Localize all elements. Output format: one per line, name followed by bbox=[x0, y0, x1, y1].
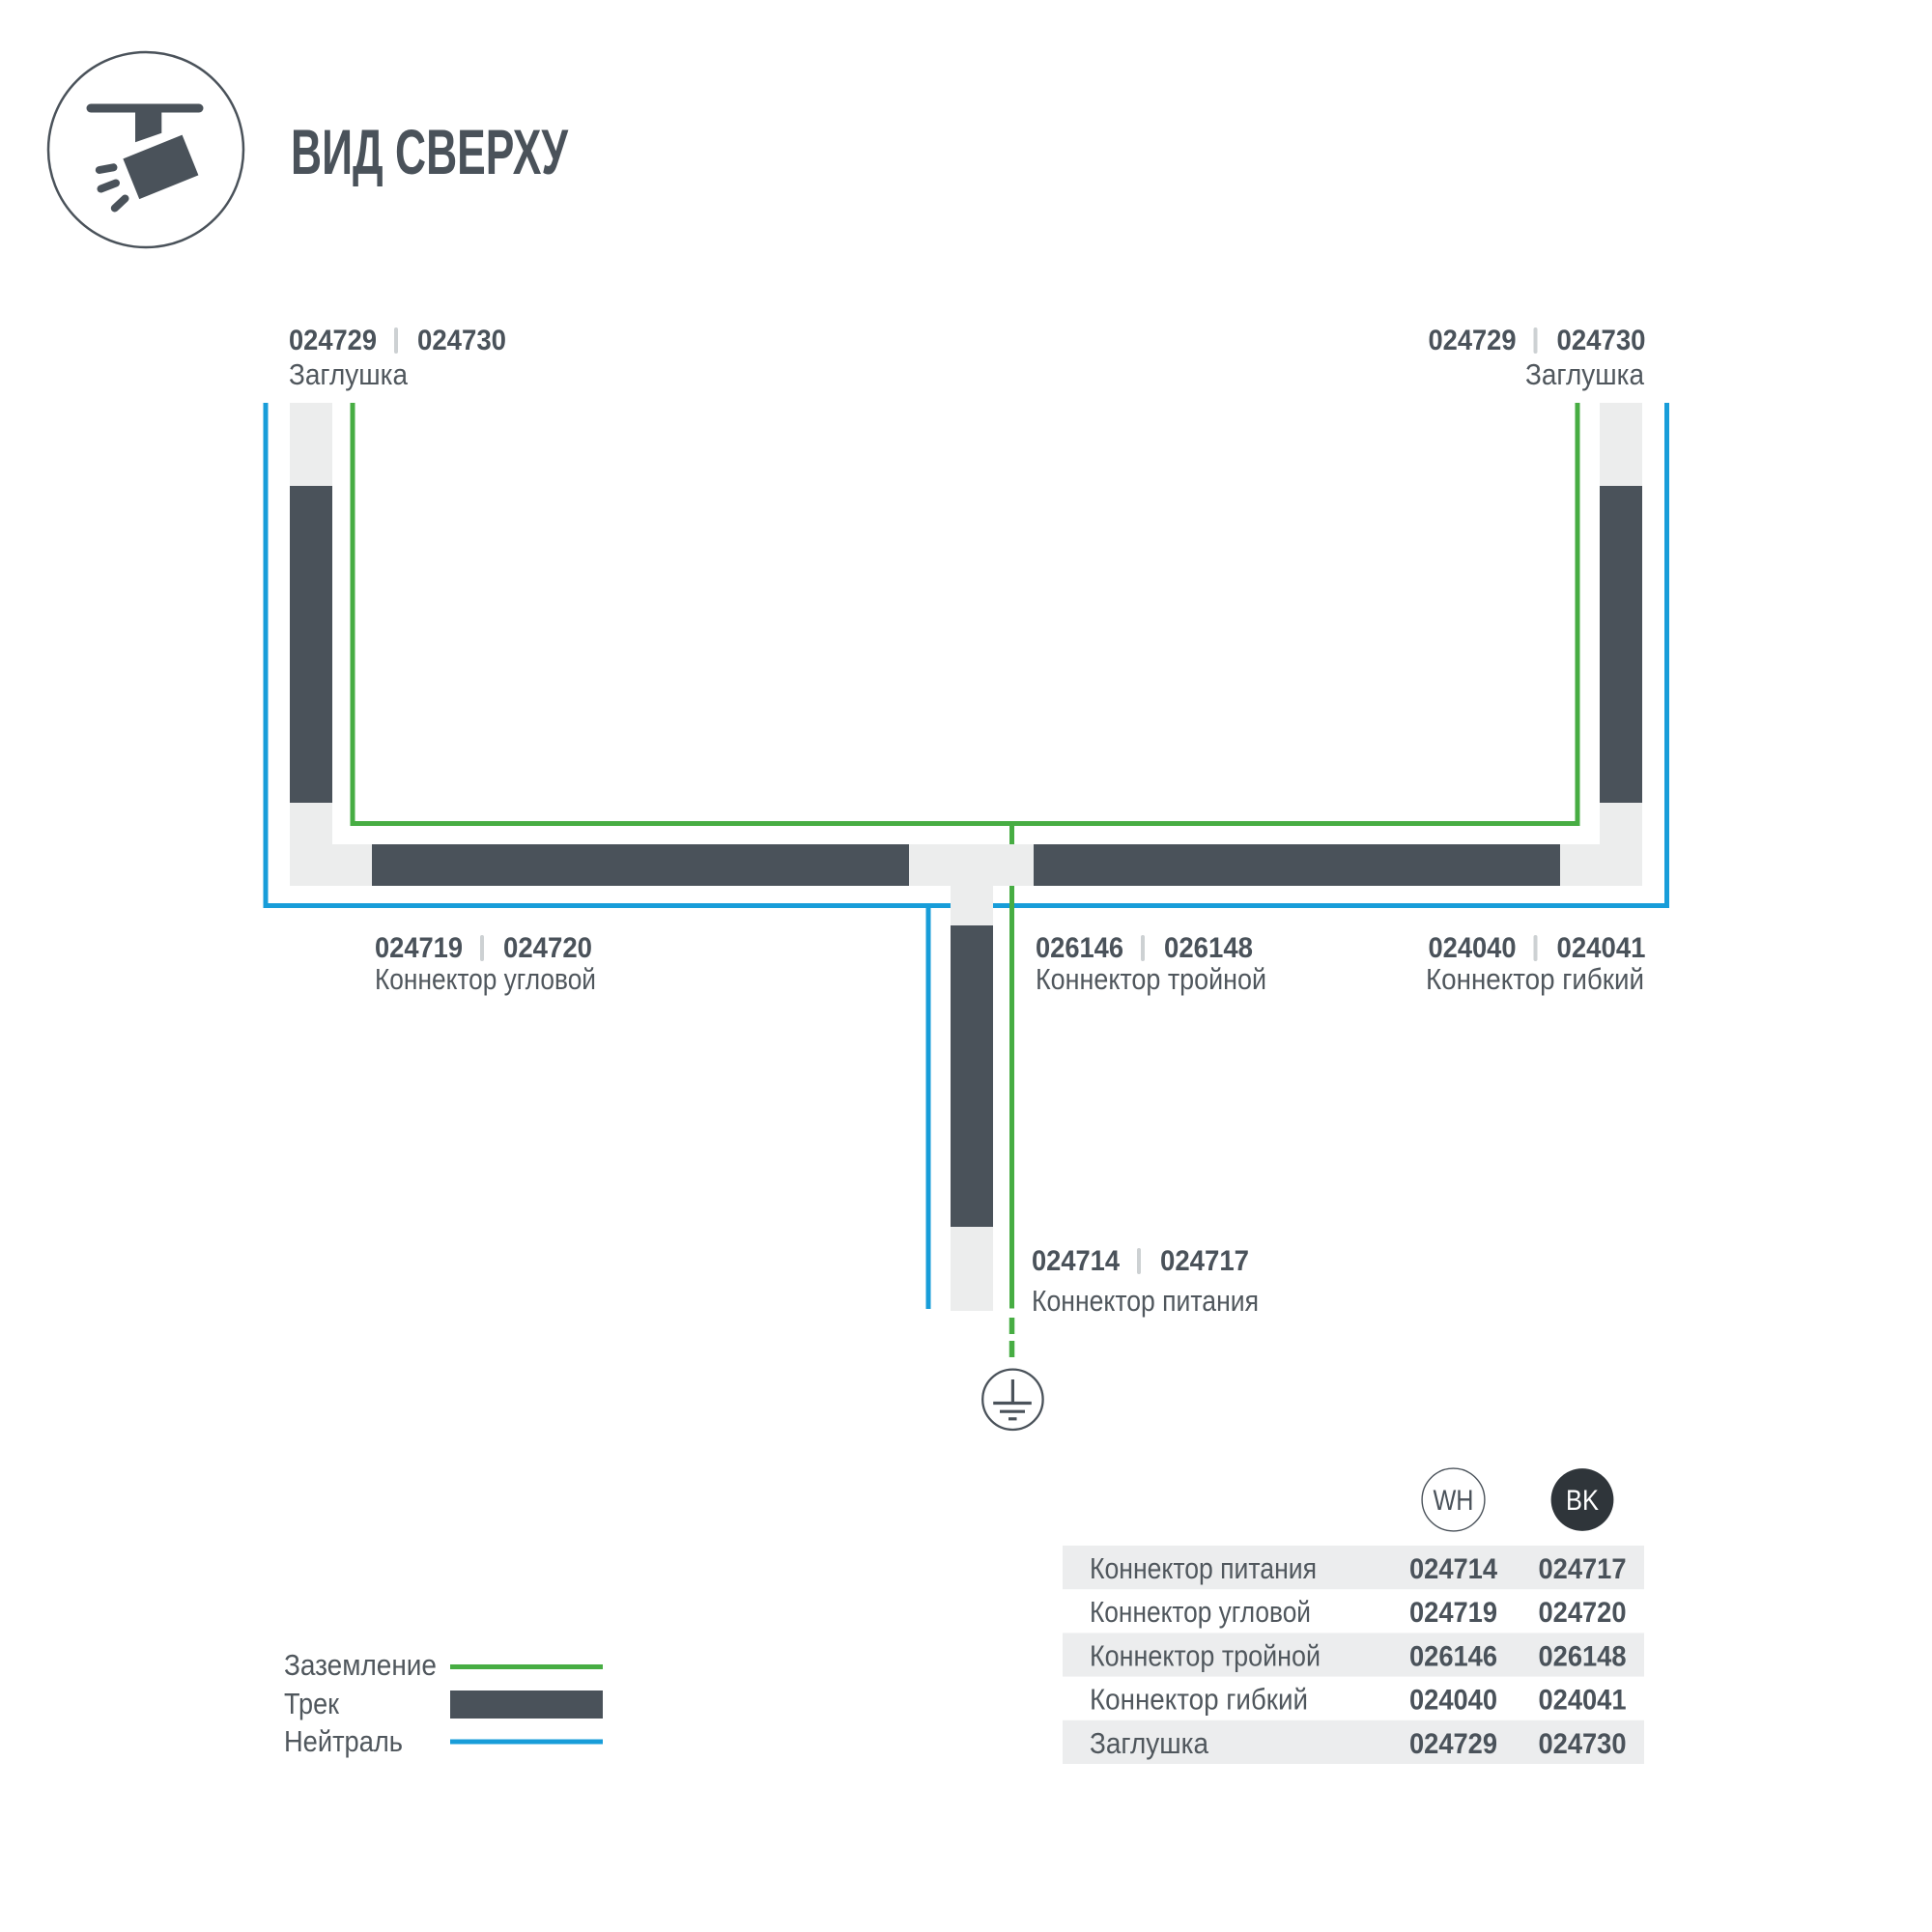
svg-text:024730: 024730 bbox=[1557, 325, 1646, 356]
svg-text:024041: 024041 bbox=[1557, 932, 1646, 964]
svg-text:ВИД СВЕРХУ: ВИД СВЕРХУ bbox=[291, 116, 569, 187]
svg-text:026148: 026148 bbox=[1539, 1640, 1627, 1672]
svg-text:Коннектор тройной: Коннектор тройной bbox=[1036, 962, 1266, 996]
svg-text:024719: 024719 bbox=[1409, 1597, 1497, 1629]
svg-text:Коннектор угловой: Коннектор угловой bbox=[1090, 1595, 1311, 1629]
svg-text:Заглушка: Заглушка bbox=[1090, 1726, 1209, 1760]
svg-text:024041: 024041 bbox=[1539, 1685, 1627, 1717]
svg-text:024730: 024730 bbox=[1539, 1728, 1627, 1760]
svg-text:024714: 024714 bbox=[1409, 1553, 1497, 1585]
svg-text:024729: 024729 bbox=[1409, 1728, 1497, 1760]
svg-text:Коннектор питания: Коннектор питания bbox=[1032, 1284, 1259, 1318]
svg-text:Заземление: Заземление bbox=[284, 1648, 437, 1682]
svg-text:024730: 024730 bbox=[417, 325, 506, 356]
svg-text:024729: 024729 bbox=[1429, 325, 1517, 356]
svg-text:WH: WH bbox=[1434, 1485, 1474, 1517]
svg-text:026148: 026148 bbox=[1164, 932, 1253, 964]
svg-text:024040: 024040 bbox=[1409, 1685, 1497, 1717]
svg-text:024040: 024040 bbox=[1429, 932, 1517, 964]
svg-text:Заглушка: Заглушка bbox=[289, 357, 409, 391]
svg-text:024714: 024714 bbox=[1032, 1245, 1120, 1277]
svg-text:BK: BK bbox=[1566, 1485, 1599, 1517]
svg-text:026146: 026146 bbox=[1036, 932, 1123, 964]
svg-text:024720: 024720 bbox=[503, 932, 592, 964]
svg-text:024717: 024717 bbox=[1539, 1553, 1627, 1585]
svg-text:Коннектор гибкий: Коннектор гибкий bbox=[1426, 962, 1644, 996]
svg-text:Коннектор гибкий: Коннектор гибкий bbox=[1090, 1683, 1308, 1717]
svg-text:Коннектор тройной: Коннектор тройной bbox=[1090, 1638, 1321, 1672]
svg-text:Трек: Трек bbox=[284, 1687, 339, 1720]
svg-text:024717: 024717 bbox=[1160, 1245, 1249, 1277]
svg-text:Коннектор угловой: Коннектор угловой bbox=[375, 962, 596, 996]
svg-text:026146: 026146 bbox=[1409, 1640, 1497, 1672]
svg-text:Заглушка: Заглушка bbox=[1525, 357, 1645, 391]
svg-text:Нейтраль: Нейтраль bbox=[284, 1724, 403, 1758]
svg-text:024720: 024720 bbox=[1539, 1597, 1627, 1629]
svg-text:024729: 024729 bbox=[289, 325, 377, 356]
svg-text:Коннектор питания: Коннектор питания bbox=[1090, 1551, 1317, 1585]
svg-text:024719: 024719 bbox=[375, 932, 463, 964]
